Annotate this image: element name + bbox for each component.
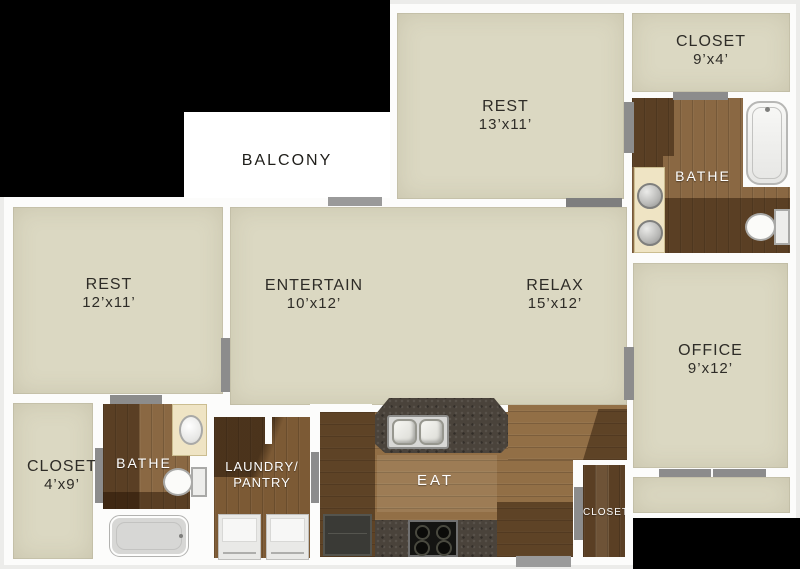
relax-dims: 15’x12’ xyxy=(526,295,583,313)
eat-passage xyxy=(508,405,627,460)
outer-edge-top xyxy=(384,0,800,4)
sink-basin xyxy=(419,419,444,445)
bathtub-alcove xyxy=(743,98,790,187)
sink-icon xyxy=(637,183,663,209)
faucet-icon xyxy=(765,107,770,112)
closet-tr-label: CLOSET xyxy=(632,33,790,51)
burner-icon xyxy=(414,540,430,556)
entertain-dims: 10’x12’ xyxy=(265,295,363,313)
door-rest-left xyxy=(110,395,162,404)
door-office-entry-right xyxy=(713,469,766,477)
double-sink xyxy=(387,415,449,449)
entertain-label: ENTERTAIN xyxy=(265,277,363,295)
exterior-black-top-left xyxy=(0,0,184,197)
washer-icon xyxy=(218,514,261,560)
rest-left-dims: 12’x11’ xyxy=(0,294,223,312)
toilet-tank xyxy=(774,209,790,245)
wall-notch xyxy=(265,417,272,444)
wood-shadow xyxy=(583,409,627,460)
door-balcony xyxy=(328,197,382,206)
toilet-tank xyxy=(191,467,207,497)
toilet-icon xyxy=(745,213,776,241)
burner-icon xyxy=(436,540,452,556)
room-label: BATHE xyxy=(668,168,738,184)
door-living-rest-left xyxy=(221,338,230,392)
closet-br-label: CLOSET xyxy=(583,507,625,518)
toilet-icon xyxy=(163,468,193,496)
outer-edge-left xyxy=(0,197,4,565)
room-bathe-bottom: BATHE xyxy=(103,403,210,559)
wall-segment xyxy=(310,404,372,411)
rest-top-dims: 13’x11’ xyxy=(387,116,624,134)
relax-label: RELAX xyxy=(526,277,583,295)
room-rest-left: REST 12’x11’ xyxy=(13,207,223,394)
door-bathe-top xyxy=(624,102,634,153)
dryer-lid xyxy=(270,518,305,542)
balcony-label: BALCONY xyxy=(184,152,390,170)
office-dims: 9’x12’ xyxy=(633,360,788,378)
room-balcony: BALCONY xyxy=(184,112,390,198)
laundry-label-line2: PANTRY xyxy=(214,475,310,491)
room-label: BALCONY xyxy=(184,152,390,170)
laundry-label-line1: LAUNDRY/ xyxy=(214,459,310,475)
room-closet-bottom-right: CLOSET xyxy=(583,465,625,557)
faucet-icon xyxy=(179,534,183,538)
door-closet-top-right xyxy=(673,92,728,100)
eat-label: EAT xyxy=(417,472,454,489)
room-label: RELAX 15’x12’ xyxy=(526,277,583,313)
room-label: BATHE xyxy=(109,455,179,471)
door-office-entry-left xyxy=(659,469,711,477)
washer-lid xyxy=(222,518,257,542)
kitchen-island xyxy=(375,398,508,453)
wood-shadow xyxy=(497,502,573,557)
vanity xyxy=(634,167,665,253)
burner-icon xyxy=(415,525,430,540)
room-label: EAT xyxy=(320,472,573,489)
entry-landing xyxy=(633,477,790,513)
room-label: REST 13’x11’ xyxy=(387,98,624,134)
room-bathe-top: BATHE xyxy=(632,98,790,253)
bathtub xyxy=(746,101,788,185)
dryer-handle xyxy=(271,552,304,554)
stove-icon xyxy=(408,520,458,557)
room-closet-left: CLOSET 4’x9’ xyxy=(13,403,93,559)
fridge-line xyxy=(328,533,367,534)
door-rest-top xyxy=(566,198,622,207)
room-label: LAUNDRY/ PANTRY xyxy=(214,459,310,491)
vanity xyxy=(172,404,207,456)
wood-shadow xyxy=(632,156,663,167)
room-label: OFFICE 9’x12’ xyxy=(633,342,788,378)
sink-icon xyxy=(179,415,203,445)
door-main-entry xyxy=(516,556,571,567)
room-laundry: LAUNDRY/ PANTRY xyxy=(214,408,310,558)
closet-tr-dims: 9’x4’ xyxy=(632,51,790,69)
exterior-black-bottom-right xyxy=(633,518,800,569)
rest-left-label: REST xyxy=(0,276,223,294)
room-label: REST 12’x11’ xyxy=(0,276,223,312)
sink-basin xyxy=(392,419,417,445)
exterior-black-above-balcony xyxy=(184,0,390,112)
door-laundry xyxy=(311,452,319,503)
bathe-top-label: BATHE xyxy=(675,168,731,184)
wood-shadow xyxy=(632,98,674,156)
sink-icon xyxy=(637,220,663,246)
door-closet-bottom-right xyxy=(574,487,583,540)
floor-plan: BALCONY REST 13’x11’ CLOSET 9’x4’ OFFICE… xyxy=(0,0,800,569)
room-label: CLOSET 9’x4’ xyxy=(632,33,790,69)
door-closet-left xyxy=(95,448,103,503)
room-living-open: ENTERTAIN 10’x12’ RELAX 15’x12’ xyxy=(230,207,627,405)
room-label: CLOSET xyxy=(583,507,625,518)
bathtub-inner xyxy=(116,522,182,550)
refrigerator-icon xyxy=(323,514,372,556)
bathtub xyxy=(110,516,188,556)
washer-handle xyxy=(223,552,256,554)
office-label: OFFICE xyxy=(633,342,788,360)
room-closet-top-right: CLOSET 9’x4’ xyxy=(632,13,790,92)
outer-edge-right xyxy=(796,4,800,518)
room-office: OFFICE 9’x12’ xyxy=(633,263,788,468)
door-office xyxy=(624,347,634,400)
burner-icon xyxy=(436,525,451,540)
dryer-icon xyxy=(266,514,309,560)
room-label: ENTERTAIN 10’x12’ xyxy=(265,277,363,313)
room-rest-top: REST 13’x11’ xyxy=(397,13,624,199)
rest-top-label: REST xyxy=(387,98,624,116)
bathe-bottom-label: BATHE xyxy=(116,455,172,471)
bathtub-inner xyxy=(752,107,782,179)
